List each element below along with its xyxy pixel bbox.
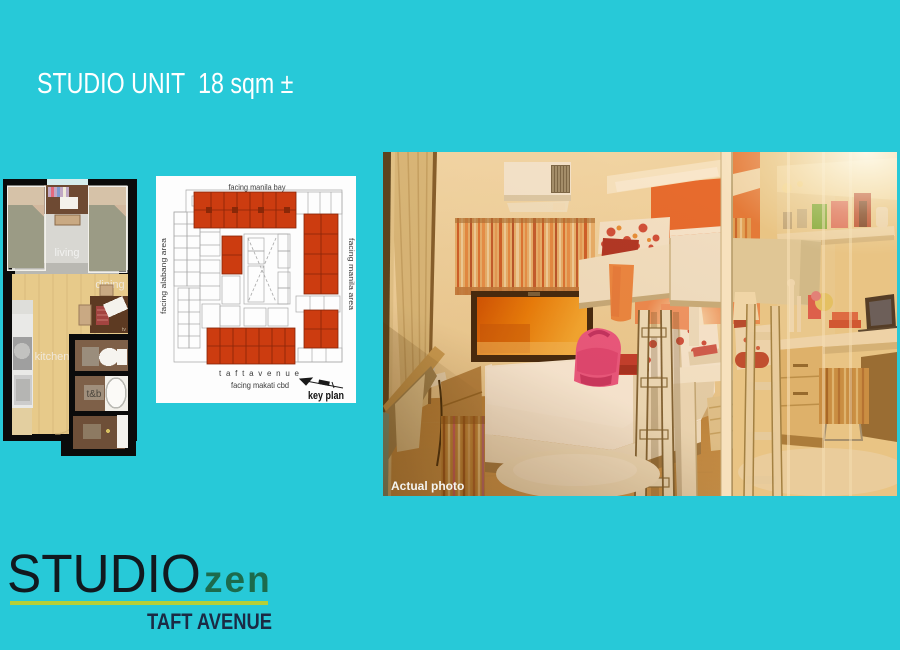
svg-text:facing makati cbd: facing makati cbd xyxy=(231,380,289,390)
svg-text:key plan: key plan xyxy=(308,390,344,402)
svg-text:living: living xyxy=(54,247,79,259)
svg-text:Actual photo: Actual photo xyxy=(391,479,464,493)
svg-text:tv: tv xyxy=(122,327,126,333)
svg-text:facing alabang area: facing alabang area xyxy=(159,237,168,314)
svg-text:facing manila area: facing manila area xyxy=(347,238,356,311)
svg-text:t a f t a v e n u e: t a f t a v e n u e xyxy=(219,369,300,378)
svg-text:kitchen: kitchen xyxy=(35,351,70,363)
svg-text:t&b: t&b xyxy=(86,389,101,400)
svg-text:facing manila bay: facing manila bay xyxy=(229,182,287,192)
